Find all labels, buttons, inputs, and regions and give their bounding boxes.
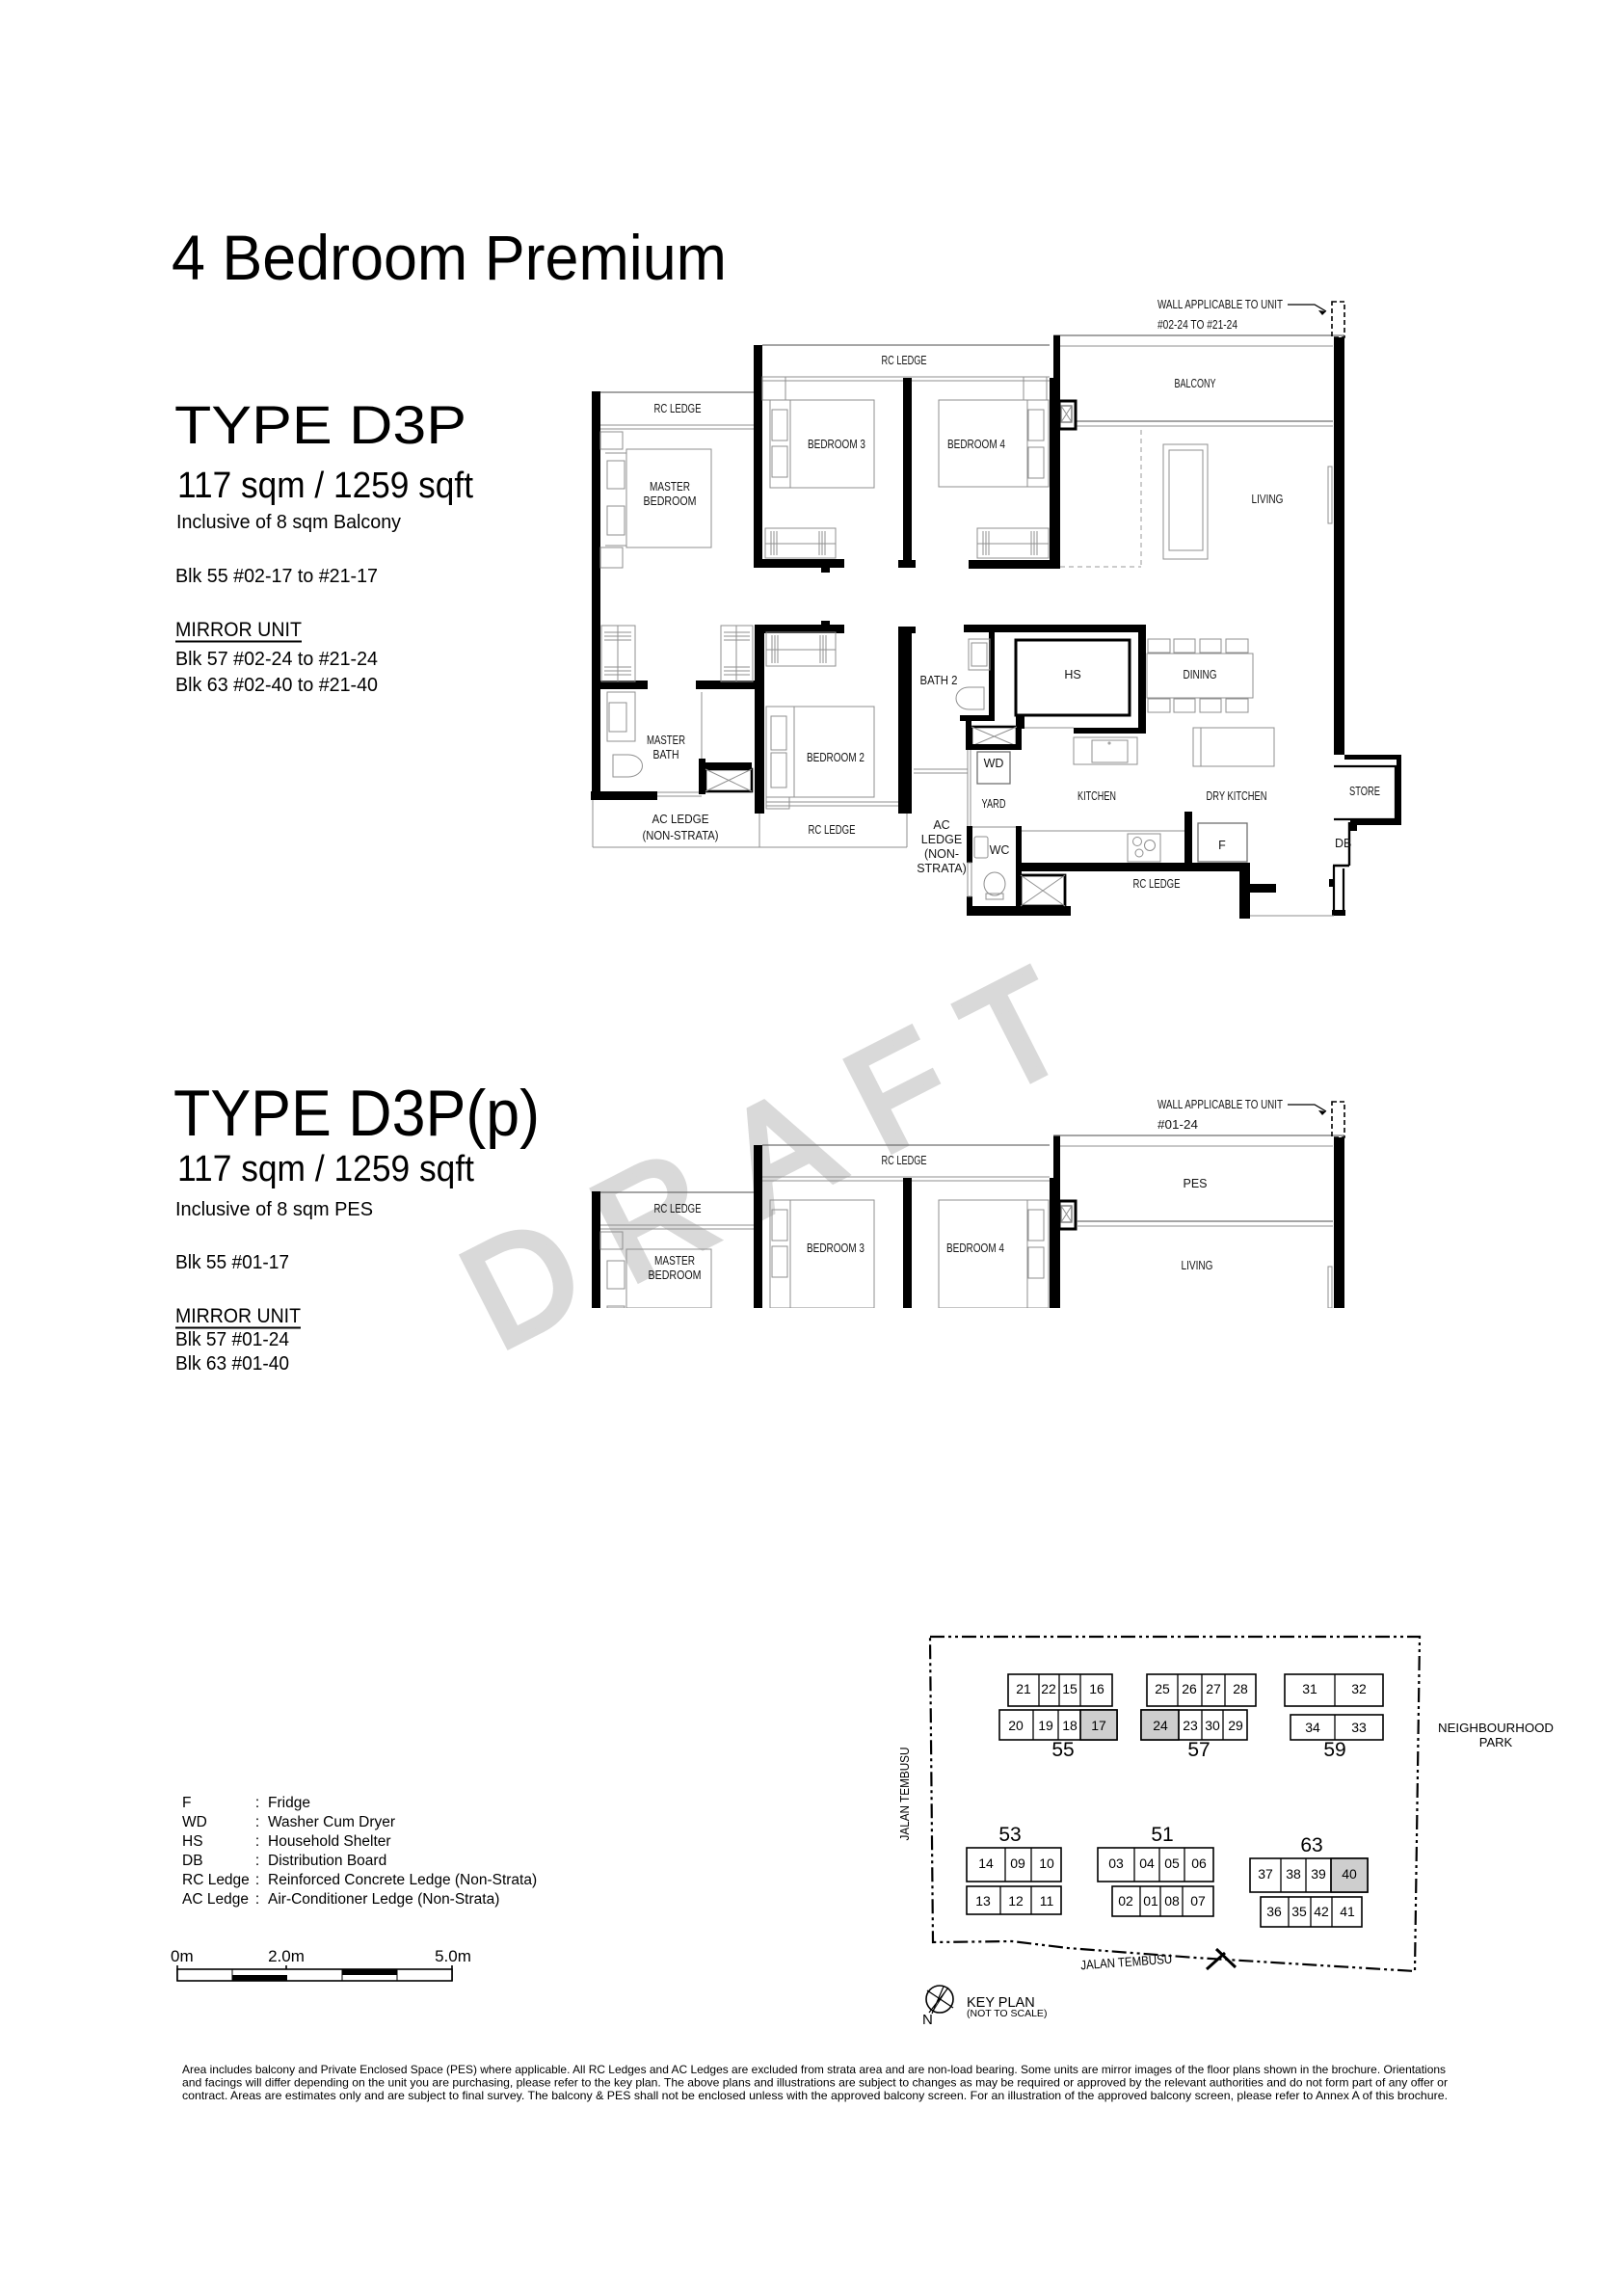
svg-text:Blk 57 #01-24: Blk 57 #01-24 bbox=[175, 1329, 289, 1350]
svg-text::: : bbox=[255, 1872, 259, 1888]
svg-text:STORE: STORE bbox=[1349, 785, 1380, 798]
svg-text:35: 35 bbox=[1291, 1904, 1307, 1919]
svg-text:DB: DB bbox=[1335, 837, 1351, 850]
svg-text:53: 53 bbox=[998, 1824, 1021, 1846]
svg-text:04: 04 bbox=[1139, 1855, 1155, 1871]
svg-text:MIRROR UNIT: MIRROR UNIT bbox=[175, 619, 302, 641]
svg-text:117 sqm / 1259 sqft: 117 sqm / 1259 sqft bbox=[177, 466, 473, 506]
svg-text:Blk 55 #02-17 to #21-17: Blk 55 #02-17 to #21-17 bbox=[175, 566, 378, 587]
svg-text:BATH: BATH bbox=[653, 748, 679, 761]
svg-text:39: 39 bbox=[1311, 1866, 1326, 1882]
svg-text:21: 21 bbox=[1016, 1681, 1031, 1696]
svg-text:AC Ledge: AC Ledge bbox=[182, 1891, 249, 1908]
svg-text:Washer Cum Dryer: Washer Cum Dryer bbox=[268, 1814, 395, 1830]
svg-text:38: 38 bbox=[1286, 1866, 1301, 1882]
svg-text:(NOT TO SCALE): (NOT TO SCALE) bbox=[967, 2008, 1047, 2019]
svg-text:Blk 55 #01-17: Blk 55 #01-17 bbox=[175, 1252, 289, 1273]
svg-text:09: 09 bbox=[1010, 1855, 1025, 1871]
svg-text:MASTER: MASTER bbox=[650, 480, 690, 494]
svg-text:Fridge: Fridge bbox=[268, 1795, 310, 1811]
svg-text:59: 59 bbox=[1323, 1739, 1345, 1761]
svg-text:02: 02 bbox=[1118, 1893, 1133, 1909]
svg-text:15: 15 bbox=[1062, 1681, 1078, 1696]
svg-text:29: 29 bbox=[1228, 1718, 1243, 1733]
svg-text:27: 27 bbox=[1206, 1681, 1221, 1696]
svg-text:WD: WD bbox=[984, 757, 1004, 770]
svg-text:Air-Conditioner Ledge (Non-Str: Air-Conditioner Ledge (Non-Strata) bbox=[268, 1891, 499, 1908]
svg-text:LEDGE: LEDGE bbox=[921, 833, 962, 846]
svg-text::: : bbox=[255, 1891, 259, 1908]
svg-text:22: 22 bbox=[1041, 1681, 1056, 1696]
svg-text:18: 18 bbox=[1062, 1718, 1078, 1733]
svg-text:KITCHEN: KITCHEN bbox=[1078, 789, 1116, 803]
svg-text:41: 41 bbox=[1340, 1904, 1355, 1919]
svg-text:Inclusive of 8 sqm PES: Inclusive of 8 sqm PES bbox=[175, 1198, 373, 1220]
svg-text:17: 17 bbox=[1091, 1718, 1106, 1733]
svg-text:LIVING: LIVING bbox=[1252, 493, 1284, 506]
svg-text:Blk 57 #02-24 to #21-24: Blk 57 #02-24 to #21-24 bbox=[175, 649, 378, 670]
svg-text:37: 37 bbox=[1258, 1866, 1273, 1882]
svg-text:BALCONY: BALCONY bbox=[1175, 377, 1216, 390]
svg-text:WALL APPLICABLE TO UNIT: WALL APPLICABLE TO UNIT bbox=[1157, 1098, 1283, 1111]
svg-text:05: 05 bbox=[1164, 1855, 1180, 1871]
svg-text:08: 08 bbox=[1164, 1893, 1180, 1909]
svg-text:07: 07 bbox=[1190, 1893, 1206, 1909]
svg-text:2.0m: 2.0m bbox=[268, 1947, 305, 1965]
svg-text:BEDROOM: BEDROOM bbox=[644, 494, 697, 508]
svg-text:14: 14 bbox=[978, 1855, 994, 1871]
svg-text:24: 24 bbox=[1153, 1718, 1168, 1733]
svg-text:BEDROOM: BEDROOM bbox=[649, 1268, 702, 1282]
svg-text:16: 16 bbox=[1089, 1681, 1104, 1696]
svg-text:TYPE D3P(p): TYPE D3P(p) bbox=[173, 1077, 540, 1150]
svg-text:Blk 63 #01-40: Blk 63 #01-40 bbox=[175, 1353, 289, 1375]
svg-text:63: 63 bbox=[1300, 1834, 1322, 1856]
svg-text:NEIGHBOURHOOD: NEIGHBOURHOOD bbox=[1438, 1721, 1554, 1735]
svg-text:57: 57 bbox=[1187, 1739, 1210, 1761]
svg-text:34: 34 bbox=[1305, 1720, 1320, 1735]
svg-text:DINING: DINING bbox=[1184, 668, 1217, 681]
svg-text:YARD: YARD bbox=[982, 797, 1006, 811]
svg-text:Reinforced Concrete Ledge (Non: Reinforced Concrete Ledge (Non-Strata) bbox=[268, 1872, 537, 1888]
svg-text:LIVING: LIVING bbox=[1182, 1259, 1213, 1272]
svg-text:Blk 63 #02-40 to #21-40: Blk 63 #02-40 to #21-40 bbox=[175, 675, 378, 696]
svg-text:4 Bedroom Premium: 4 Bedroom Premium bbox=[172, 222, 727, 293]
svg-text:BEDROOM 3: BEDROOM 3 bbox=[807, 1241, 865, 1255]
svg-text::: : bbox=[255, 1814, 259, 1830]
svg-text:RC LEDGE: RC LEDGE bbox=[882, 1154, 927, 1167]
svg-text:10: 10 bbox=[1039, 1855, 1054, 1871]
svg-text:06: 06 bbox=[1191, 1855, 1207, 1871]
svg-text:F: F bbox=[182, 1795, 191, 1811]
svg-text:contract. Areas are estimates: contract. Areas are estimates only and a… bbox=[182, 2089, 1448, 2102]
svg-text:MASTER: MASTER bbox=[647, 734, 685, 747]
svg-text:01: 01 bbox=[1143, 1893, 1158, 1909]
svg-text:HS: HS bbox=[1064, 668, 1080, 681]
svg-text:RC LEDGE: RC LEDGE bbox=[1133, 877, 1181, 891]
svg-text:42: 42 bbox=[1314, 1904, 1329, 1919]
svg-text:WC: WC bbox=[990, 843, 1010, 857]
svg-text:and facings will differ depend: and facings will differ depending on the… bbox=[182, 2076, 1448, 2090]
svg-text:PES: PES bbox=[1183, 1177, 1207, 1190]
svg-text:BEDROOM 3: BEDROOM 3 bbox=[808, 438, 865, 451]
svg-text:11: 11 bbox=[1040, 1893, 1054, 1909]
svg-text:HS: HS bbox=[182, 1833, 203, 1850]
svg-text:AC LEDGE: AC LEDGE bbox=[652, 813, 709, 826]
svg-text:26: 26 bbox=[1182, 1681, 1197, 1696]
svg-text:RC LEDGE: RC LEDGE bbox=[654, 402, 702, 415]
svg-text:WALL APPLICABLE TO UNIT: WALL APPLICABLE TO UNIT bbox=[1157, 298, 1283, 311]
svg-text:Household Shelter: Household Shelter bbox=[268, 1833, 391, 1850]
svg-text::: : bbox=[255, 1853, 259, 1869]
svg-text:STRATA): STRATA) bbox=[917, 862, 967, 875]
svg-text:30: 30 bbox=[1205, 1718, 1220, 1733]
svg-text:13: 13 bbox=[975, 1893, 991, 1909]
svg-text:RC LEDGE: RC LEDGE bbox=[882, 354, 927, 367]
svg-text:PARK: PARK bbox=[1479, 1735, 1513, 1749]
svg-text:BATH 2: BATH 2 bbox=[920, 674, 958, 687]
svg-text:DRY KITCHEN: DRY KITCHEN bbox=[1207, 789, 1267, 803]
svg-text:51: 51 bbox=[1151, 1824, 1173, 1846]
svg-text:23: 23 bbox=[1183, 1718, 1198, 1733]
svg-text::: : bbox=[255, 1833, 259, 1850]
svg-text:33: 33 bbox=[1351, 1720, 1367, 1735]
svg-text:20: 20 bbox=[1008, 1718, 1024, 1733]
svg-text:MASTER: MASTER bbox=[654, 1254, 695, 1268]
svg-text:03: 03 bbox=[1108, 1855, 1124, 1871]
svg-text:55: 55 bbox=[1051, 1739, 1074, 1761]
svg-text:28: 28 bbox=[1233, 1681, 1248, 1696]
svg-text:12: 12 bbox=[1008, 1893, 1024, 1909]
svg-text:Inclusive of 8 sqm Balcony: Inclusive of 8 sqm Balcony bbox=[176, 511, 402, 533]
svg-text:BEDROOM 4: BEDROOM 4 bbox=[946, 1241, 1004, 1255]
svg-text:5.0m: 5.0m bbox=[435, 1947, 471, 1965]
svg-text:JALAN TEMBUSU: JALAN TEMBUSU bbox=[897, 1748, 912, 1841]
svg-text:WD: WD bbox=[182, 1814, 207, 1830]
svg-text:MIRROR UNIT: MIRROR UNIT bbox=[175, 1305, 301, 1327]
svg-text:BEDROOM 4: BEDROOM 4 bbox=[947, 438, 1005, 451]
svg-text:AC: AC bbox=[933, 818, 949, 832]
svg-text:F: F bbox=[1218, 839, 1226, 852]
svg-text:DB: DB bbox=[182, 1853, 203, 1869]
svg-text:36: 36 bbox=[1266, 1904, 1282, 1919]
svg-text:Distribution Board: Distribution Board bbox=[268, 1853, 386, 1869]
svg-text:#02-24 TO #21-24: #02-24 TO #21-24 bbox=[1157, 318, 1237, 332]
svg-text:N: N bbox=[922, 2012, 933, 2028]
svg-text:RC Ledge: RC Ledge bbox=[182, 1872, 250, 1888]
svg-text::: : bbox=[255, 1795, 259, 1811]
svg-text:25: 25 bbox=[1155, 1681, 1170, 1696]
svg-text:(NON-: (NON- bbox=[924, 847, 959, 861]
svg-text:117 sqm / 1259 sqft: 117 sqm / 1259 sqft bbox=[177, 1149, 474, 1189]
svg-text:TYPE D3P: TYPE D3P bbox=[174, 394, 466, 455]
svg-text:40: 40 bbox=[1342, 1866, 1357, 1882]
svg-text:32: 32 bbox=[1351, 1681, 1367, 1696]
svg-text:0m: 0m bbox=[171, 1947, 194, 1965]
svg-text:Area includes balcony and Priv: Area includes balcony and Private Enclos… bbox=[182, 2063, 1446, 2076]
svg-text:BEDROOM 2: BEDROOM 2 bbox=[807, 751, 865, 764]
svg-text:19: 19 bbox=[1038, 1718, 1053, 1733]
svg-text:RC LEDGE: RC LEDGE bbox=[654, 1202, 702, 1215]
svg-text:RC LEDGE: RC LEDGE bbox=[809, 823, 856, 837]
svg-text:#01-24: #01-24 bbox=[1157, 1118, 1198, 1132]
svg-text:31: 31 bbox=[1302, 1681, 1317, 1696]
svg-text:(NON-STRATA): (NON-STRATA) bbox=[643, 829, 719, 842]
